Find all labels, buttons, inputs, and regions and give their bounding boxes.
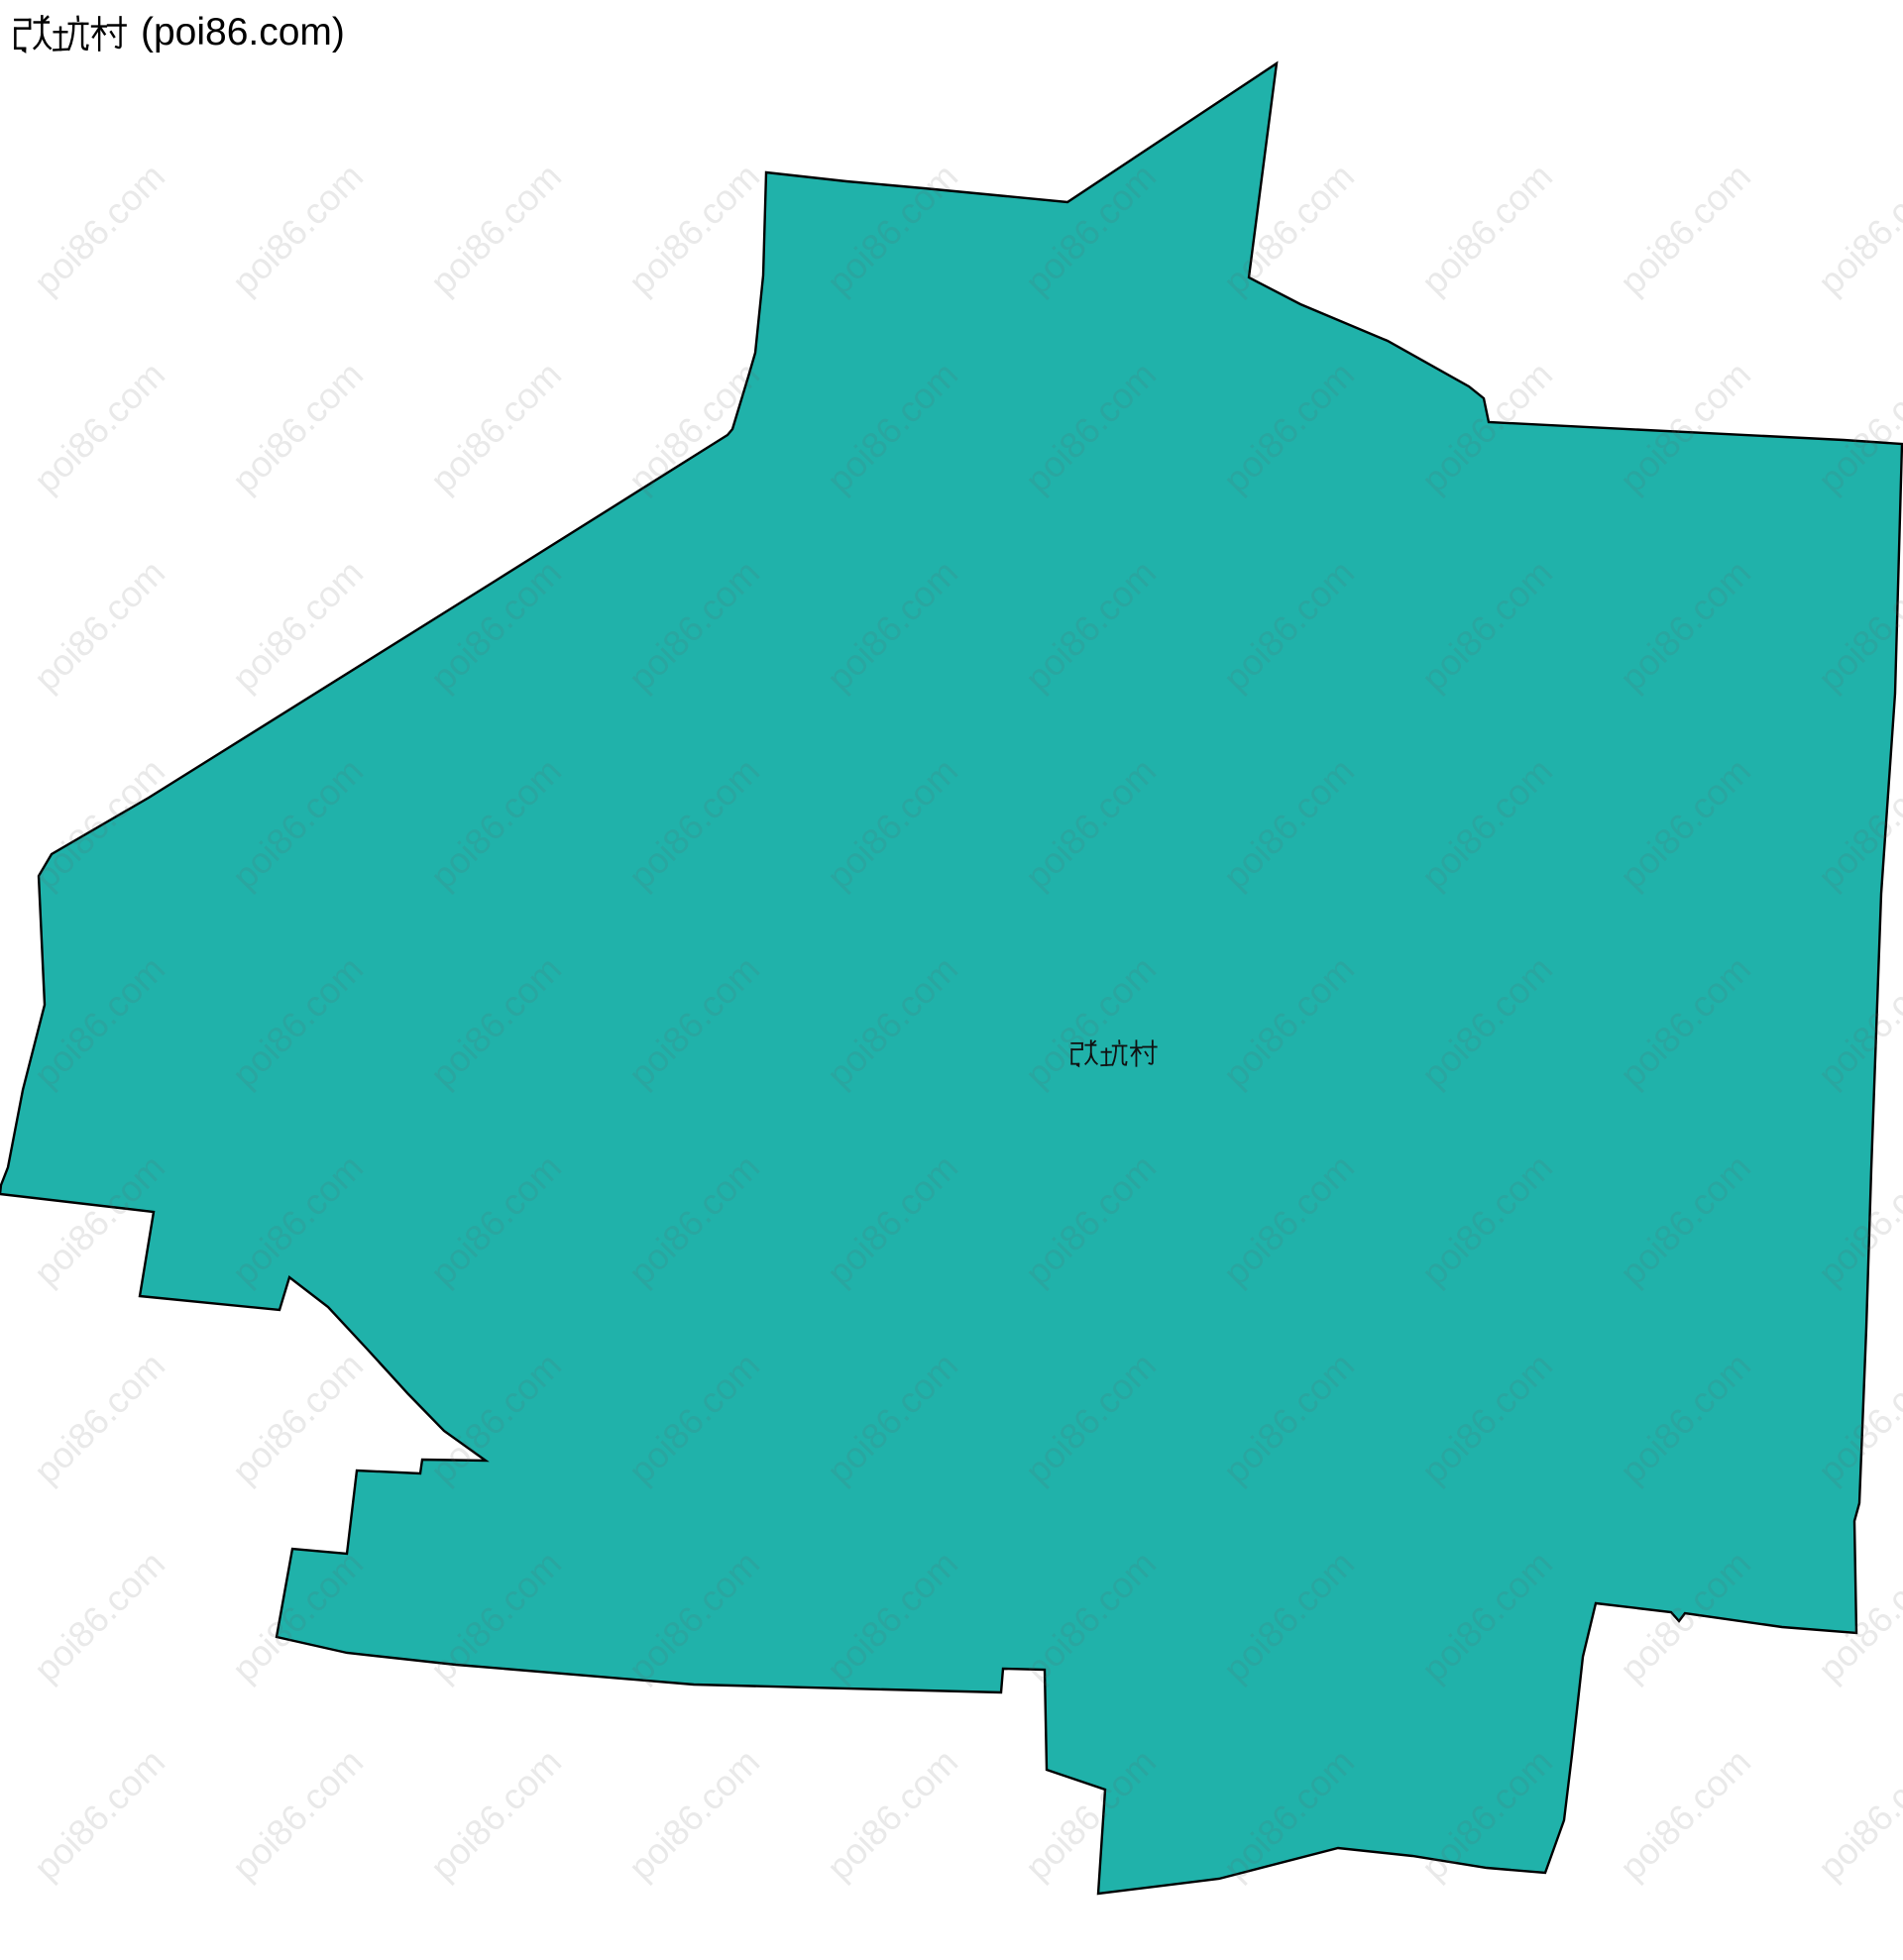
svg-text:(poi86.com): (poi86.com) bbox=[141, 11, 345, 54]
